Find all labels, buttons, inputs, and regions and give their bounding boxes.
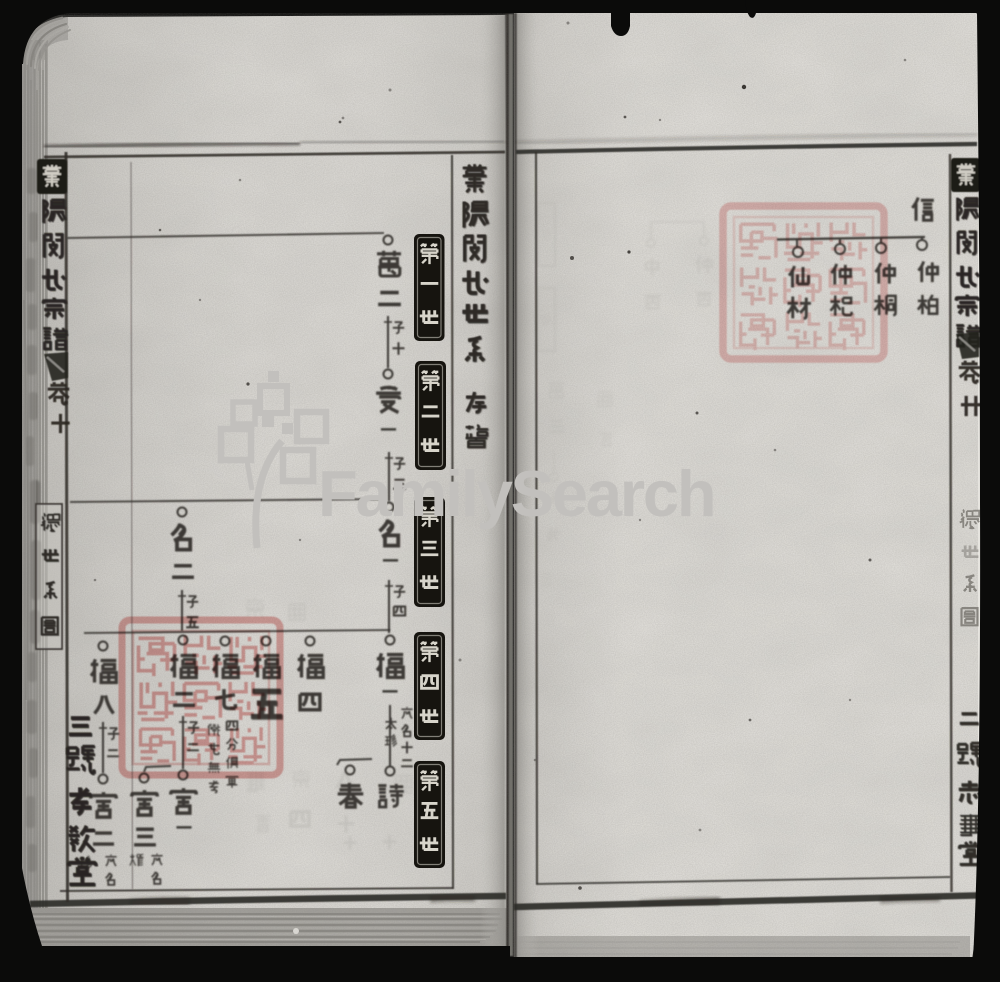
svg-text:FamilySearch: FamilySearch xyxy=(318,457,714,530)
